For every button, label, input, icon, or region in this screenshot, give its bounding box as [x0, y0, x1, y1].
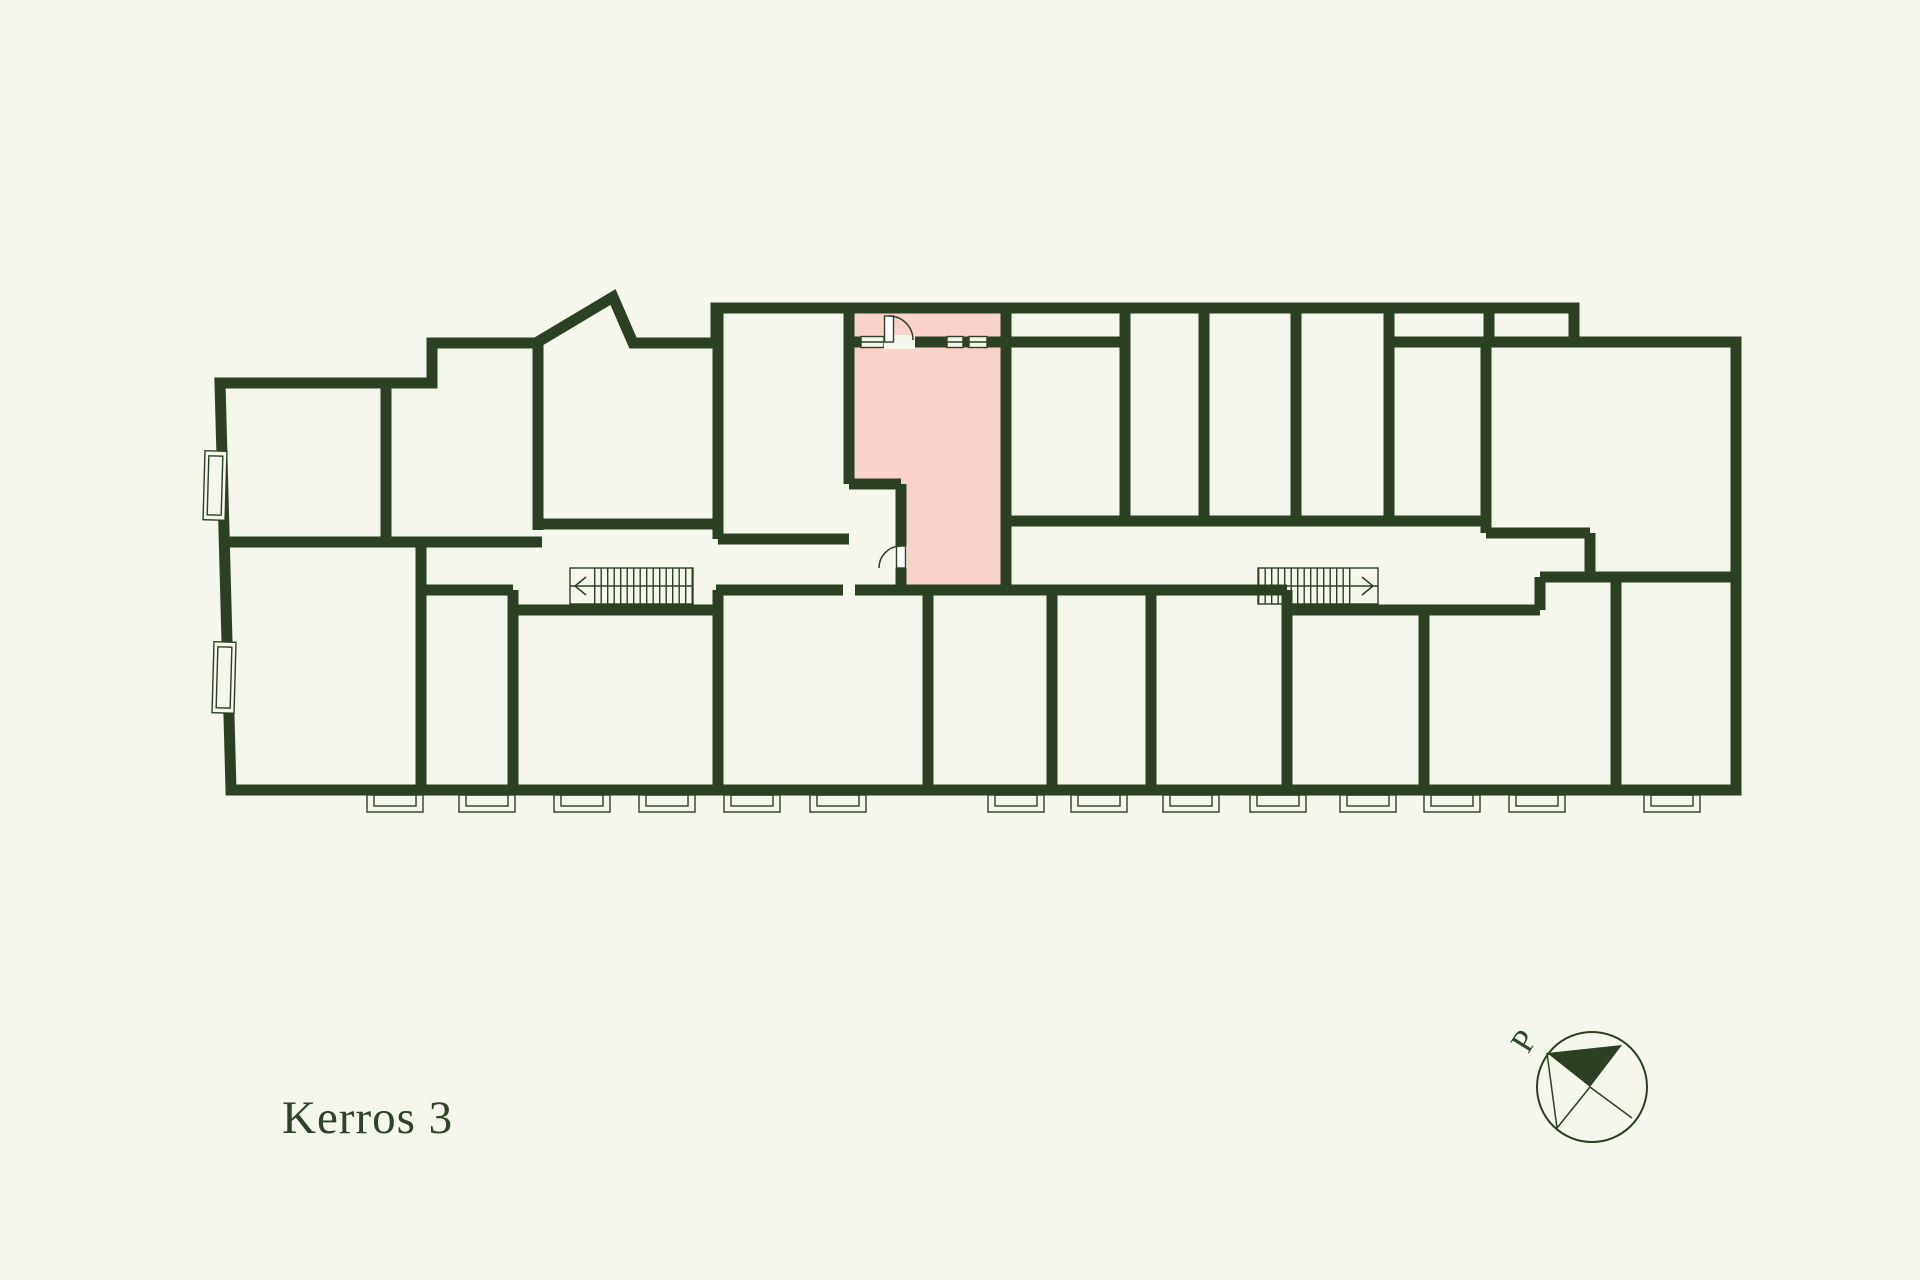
window-symbol [1424, 795, 1480, 812]
window-symbol [810, 795, 866, 812]
balcony-door-leaf [885, 316, 894, 342]
floor-title: Kerros 3 [282, 1092, 453, 1144]
window-symbol [459, 795, 515, 812]
window-symbol [724, 795, 780, 812]
window-symbol [639, 795, 695, 812]
compass-north-label: P [1504, 1024, 1544, 1059]
floor-plan-canvas: P Kerros 3 [0, 0, 1920, 1280]
window-symbol [212, 642, 236, 714]
apartment-entry-door [879, 546, 907, 568]
window-symbol [988, 795, 1044, 812]
window-symbol [1509, 795, 1565, 812]
window-symbol [1071, 795, 1127, 812]
stairs-right [1258, 568, 1378, 604]
bottom-windows [367, 795, 1700, 812]
entry-door-leaf [897, 546, 906, 568]
window-symbol [1644, 795, 1700, 812]
floor-plan-page: P Kerros 3 [0, 0, 1920, 1280]
window-symbol [554, 795, 610, 812]
stairs-left [570, 568, 693, 604]
window-symbol [203, 451, 227, 521]
window-symbol [367, 795, 423, 812]
compass: P [1504, 1024, 1647, 1142]
left-windows [203, 451, 236, 714]
corridor-door-gap [843, 584, 855, 597]
window-symbol [1163, 795, 1219, 812]
compass-needle [1547, 1045, 1622, 1087]
window-symbol [1250, 795, 1306, 812]
window-symbol [1340, 795, 1396, 812]
